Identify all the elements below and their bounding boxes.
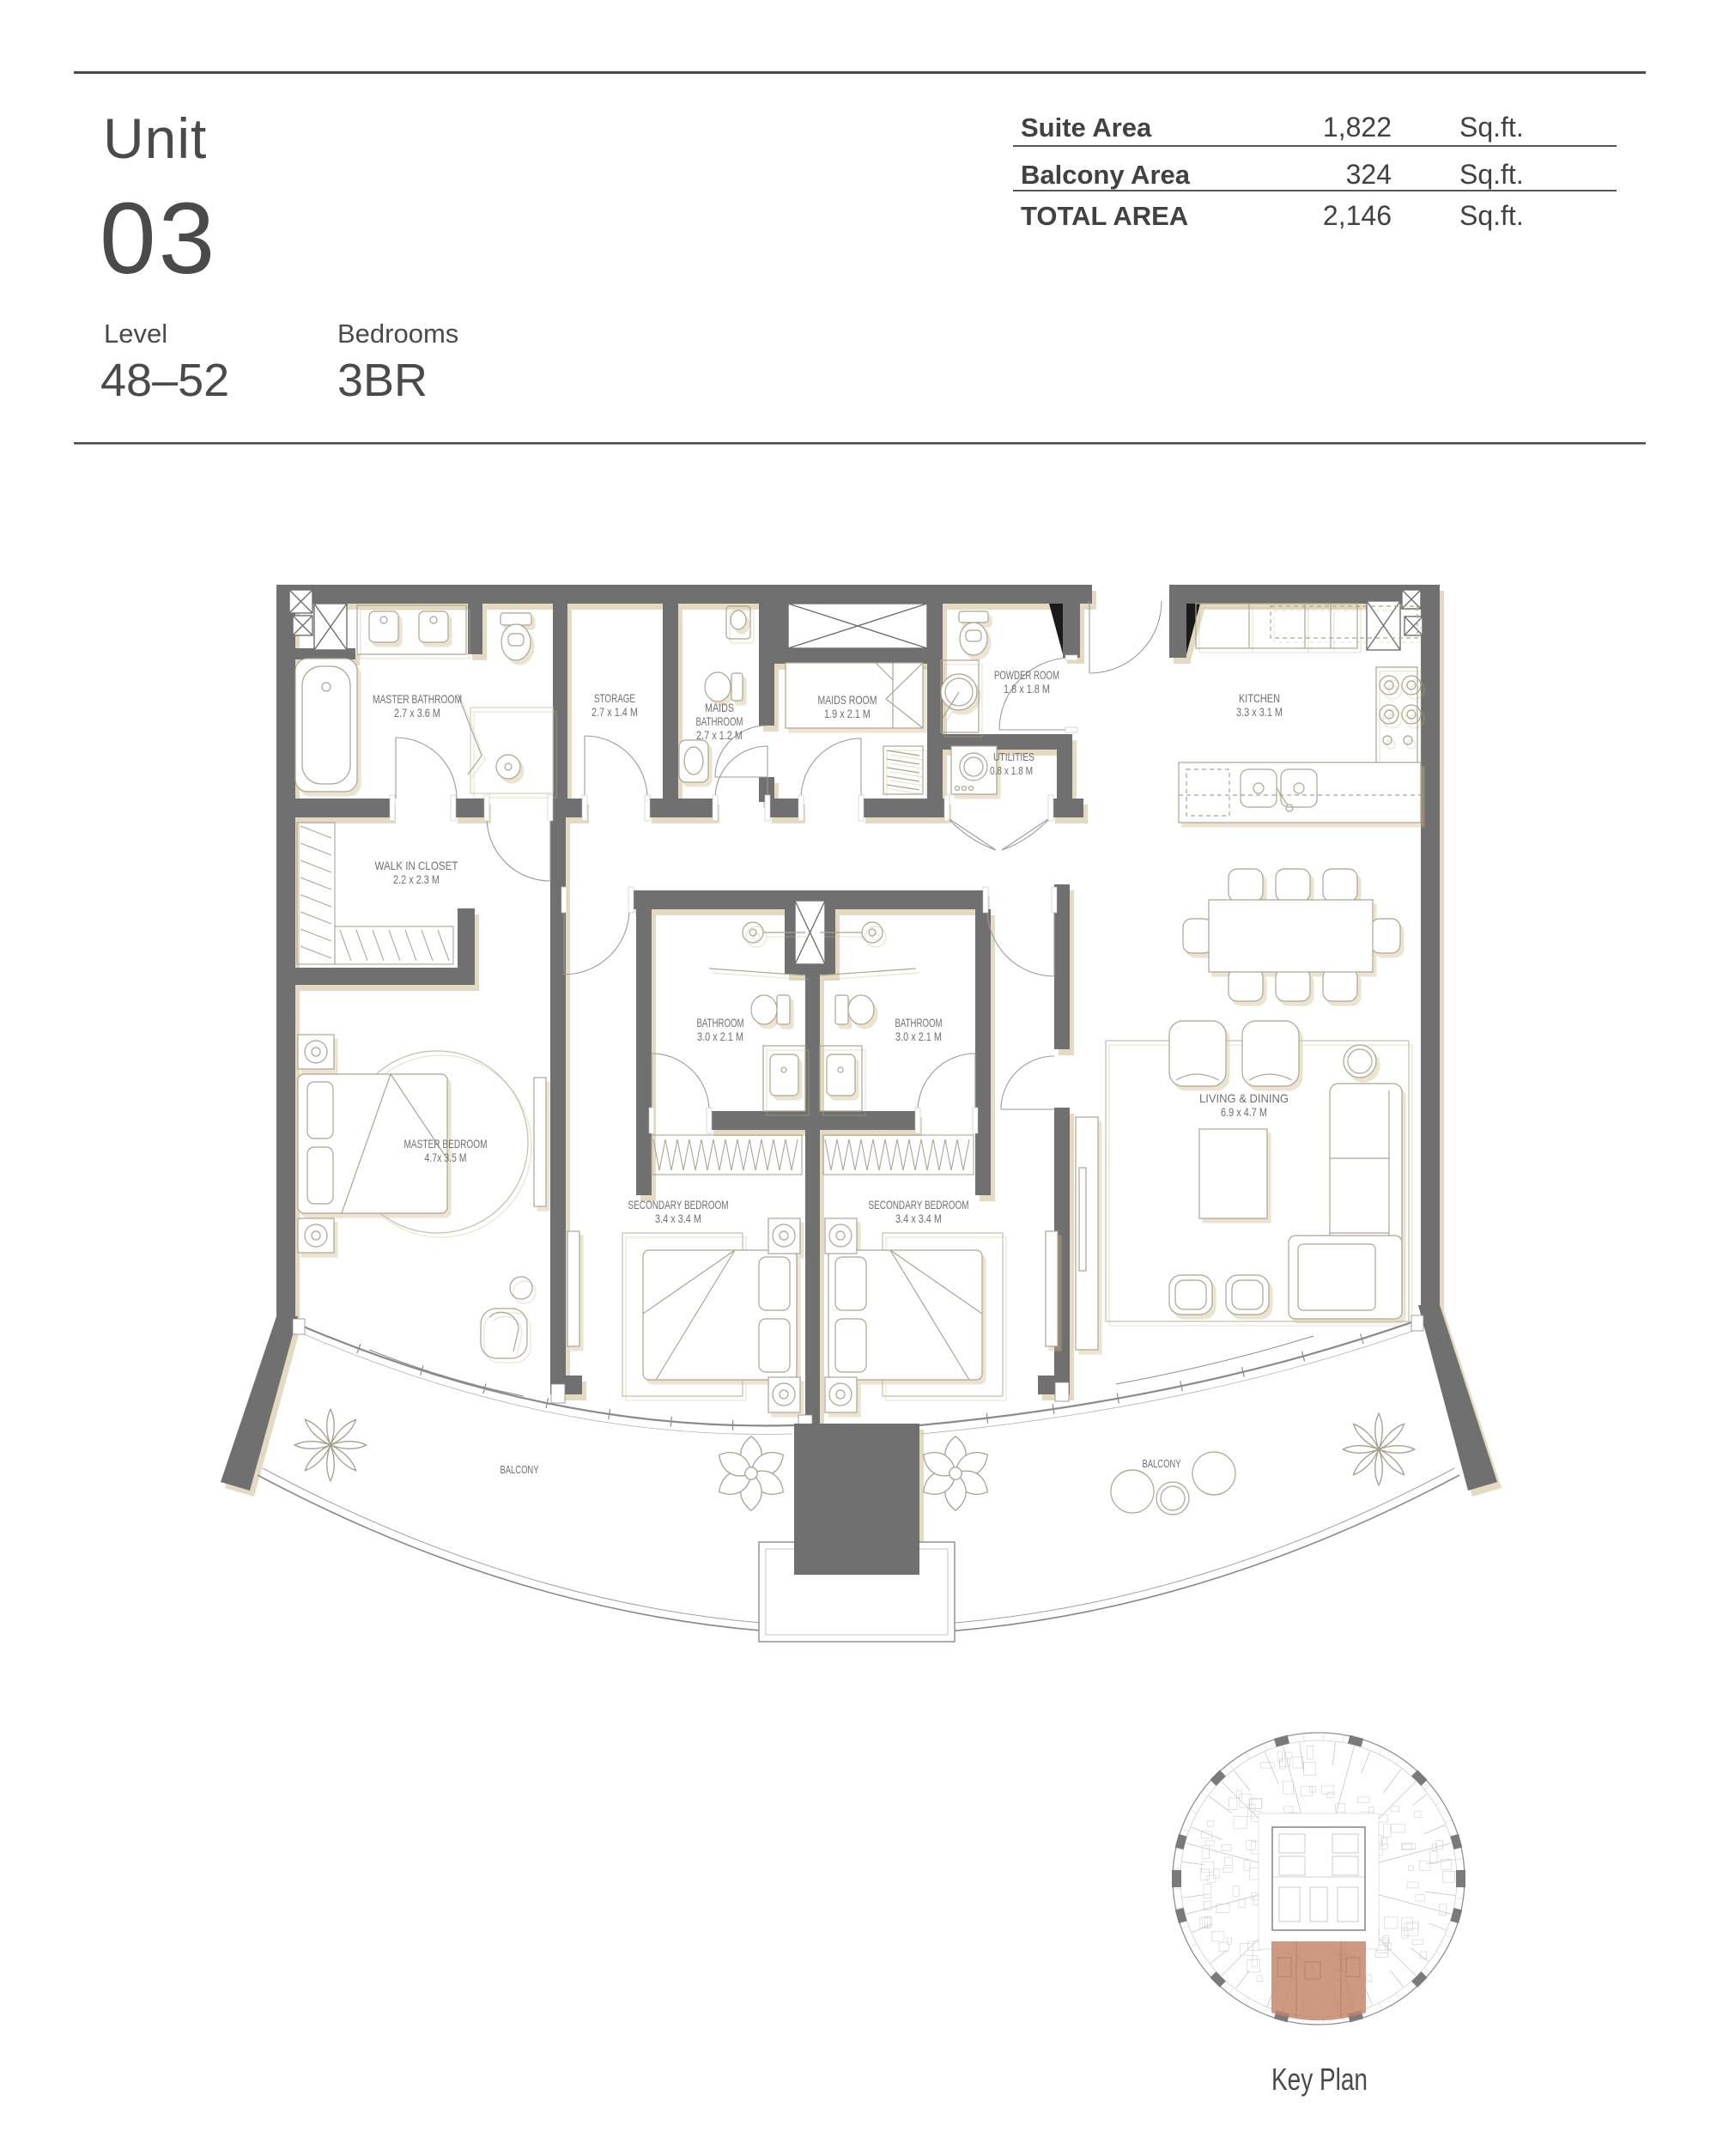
svg-text:2.7 x 1.2 M: 2.7 x 1.2 M <box>696 728 743 742</box>
svg-text:SECONDARY BEDROOM: SECONDARY BEDROOM <box>628 1198 729 1212</box>
svg-text:1,822: 1,822 <box>1323 112 1392 143</box>
svg-text:POWDER ROOM: POWDER ROOM <box>994 668 1059 682</box>
svg-text:BALCONY: BALCONY <box>1143 1457 1181 1470</box>
svg-text:2,146: 2,146 <box>1323 200 1392 231</box>
svg-text:1.8 x 1.8 M: 1.8 x 1.8 M <box>1004 682 1050 695</box>
svg-text:SECONDARY BEDROOM: SECONDARY BEDROOM <box>869 1198 969 1212</box>
svg-text:Suite Area: Suite Area <box>1021 112 1152 143</box>
svg-text:BALCONY: BALCONY <box>501 1463 539 1476</box>
svg-text:3.0 x 2.1 M: 3.0 x 2.1 M <box>895 1029 942 1043</box>
svg-text:KITCHEN: KITCHEN <box>1239 691 1280 705</box>
svg-text:BATHROOM: BATHROOM <box>697 1016 744 1029</box>
svg-text:48–52: 48–52 <box>100 355 229 406</box>
svg-text:3.4 x 3.4 M: 3.4 x 3.4 M <box>895 1212 942 1225</box>
svg-text:2.2 x 2.3 M: 2.2 x 2.3 M <box>393 872 440 886</box>
svg-text:Key Plan: Key Plan <box>1271 2062 1368 2097</box>
svg-text:03: 03 <box>100 182 217 295</box>
svg-text:4.7x 3.5 M: 4.7x 3.5 M <box>425 1151 467 1164</box>
svg-text:6.9 x 4.7 M: 6.9 x 4.7 M <box>1221 1105 1267 1119</box>
svg-text:3BR: 3BR <box>337 355 428 406</box>
svg-text:0.8 x 1.8 M: 0.8 x 1.8 M <box>990 765 1033 777</box>
svg-text:WALK IN CLOSET: WALK IN CLOSET <box>375 859 458 872</box>
svg-text:3.4 x 3.4 M: 3.4 x 3.4 M <box>655 1212 701 1225</box>
svg-text:Balcony Area: Balcony Area <box>1021 160 1191 190</box>
svg-text:Bedrooms: Bedrooms <box>337 319 458 349</box>
svg-text:Sq.ft.: Sq.ft. <box>1459 200 1524 231</box>
svg-text:Unit: Unit <box>103 106 207 170</box>
svg-text:Level: Level <box>104 319 167 349</box>
svg-text:2.7 x 1.4 M: 2.7 x 1.4 M <box>592 705 638 719</box>
svg-text:324: 324 <box>1346 159 1392 190</box>
svg-text:3.3 x 3.1 M: 3.3 x 3.1 M <box>1236 705 1283 719</box>
svg-text:UTILITIES: UTILITIES <box>993 751 1034 763</box>
svg-text:1.9 x 2.1 M: 1.9 x 2.1 M <box>824 707 871 720</box>
svg-text:BATHROOM: BATHROOM <box>895 1016 943 1029</box>
svg-text:LIVING & DINING: LIVING & DINING <box>1199 1091 1289 1105</box>
svg-text:MASTER BEDROOM: MASTER BEDROOM <box>404 1137 488 1151</box>
svg-text:3.0 x 2.1 M: 3.0 x 2.1 M <box>697 1029 743 1043</box>
svg-text:BATHROOM: BATHROOM <box>696 714 743 728</box>
svg-text:2.7 x 3.6 M: 2.7 x 3.6 M <box>394 706 440 720</box>
svg-text:MASTER BATHROOM: MASTER BATHROOM <box>373 692 462 706</box>
svg-text:Sq.ft.: Sq.ft. <box>1459 159 1524 190</box>
svg-text:TOTAL AREA: TOTAL AREA <box>1021 201 1188 231</box>
svg-text:MAIDS ROOM: MAIDS ROOM <box>818 693 877 707</box>
svg-text:STORAGE: STORAGE <box>594 691 635 705</box>
svg-text:MAIDS: MAIDS <box>705 701 734 714</box>
svg-text:Sq.ft.: Sq.ft. <box>1459 112 1524 143</box>
